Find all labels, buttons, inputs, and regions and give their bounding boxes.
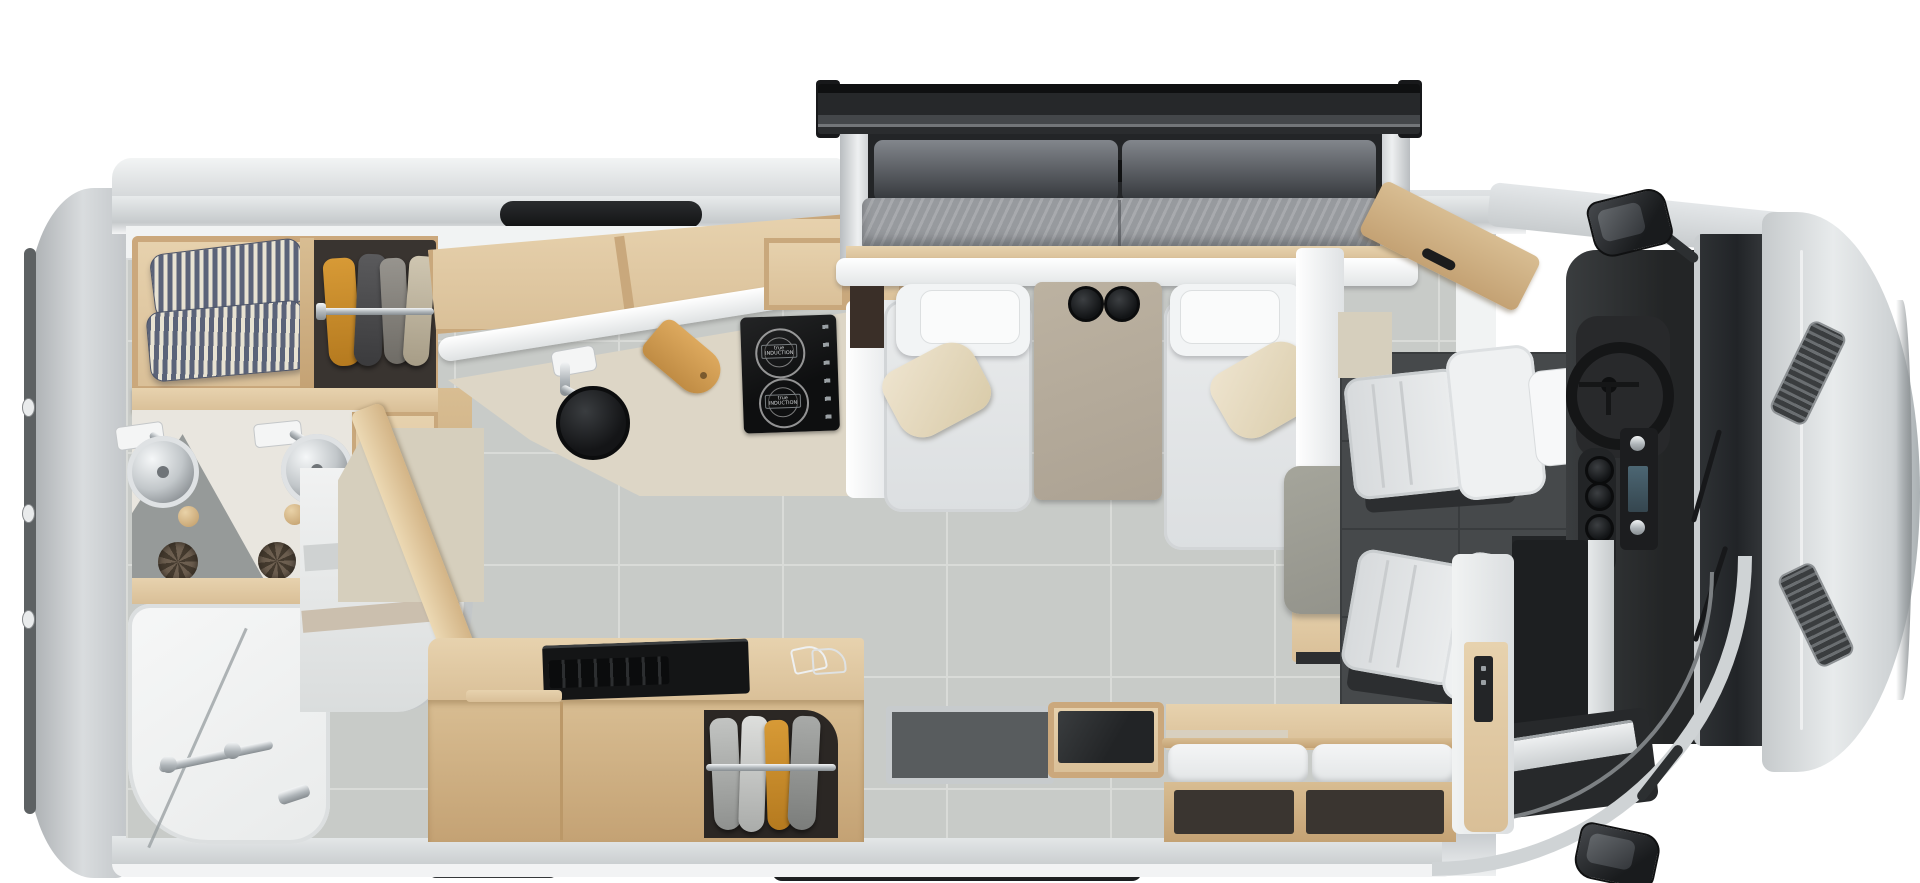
hood-crease: [1800, 250, 1803, 730]
mattress-seam: [1118, 200, 1121, 246]
console-cupholder: [1585, 514, 1614, 543]
bench-cushion: [1312, 744, 1454, 784]
cooktop-brand-label: true INDUCTION: [765, 394, 801, 409]
cubby-opening: [1306, 790, 1444, 834]
bench-cushion: [1168, 744, 1308, 784]
glass-end-table: [1048, 702, 1164, 778]
garment-white: [738, 716, 768, 833]
dash-knob: [1630, 436, 1645, 451]
pinecone-decor: [258, 542, 296, 580]
clearance-light: [22, 398, 35, 417]
glass-inset: [1058, 711, 1154, 763]
cooktop-brand-label: true INDUCTION: [761, 344, 797, 359]
dash-knob: [1630, 520, 1645, 535]
sink-drain-left: [157, 466, 169, 478]
pinecone-decor: [158, 542, 198, 582]
kitchen-sink: [556, 386, 630, 460]
recliner-right-headrest: [1180, 290, 1280, 344]
cabinet-front-seam: [560, 702, 563, 840]
rear-cap: [28, 188, 128, 878]
front-bumper-edge: [1896, 300, 1912, 700]
cooktop-brand-line2: INDUCTION: [765, 350, 794, 357]
recliner-left-headrest: [920, 290, 1020, 344]
table-cupholder: [1104, 286, 1140, 322]
sofa-back-cushion: [1122, 140, 1376, 202]
usb-port-light: [1481, 680, 1486, 685]
mirror-glass: [1596, 201, 1646, 243]
garment-gray: [787, 715, 821, 830]
striped-pillow: [145, 299, 308, 383]
rear-bumper-edge: [24, 248, 36, 814]
divider-base-kick: [1296, 652, 1344, 664]
console-cupholder: [1585, 456, 1614, 485]
shower-handle: [224, 742, 241, 759]
mirror-glass: [1585, 832, 1636, 871]
clearance-light: [22, 504, 35, 523]
console-cupholder: [1585, 482, 1614, 511]
body-skirt: [112, 864, 1450, 877]
roof-vent: [500, 201, 702, 228]
wardrobe-divider: [300, 238, 314, 390]
usb-control-panel: [1474, 656, 1493, 722]
side-mirror-bottom: [1571, 820, 1663, 883]
lounge-corner-gap: [850, 286, 884, 348]
sofa-back-cushion: [874, 140, 1118, 202]
slideout-awning-topper: [818, 84, 1420, 134]
bath-shelf-band: [132, 388, 438, 412]
cooktop-controls: [822, 325, 831, 423]
induction-cooktop: true INDUCTION true INDUCTION: [740, 314, 840, 433]
murphy-bed-mattress: [862, 198, 1380, 248]
shower-handle: [160, 756, 177, 773]
steering-spoke: [1606, 383, 1611, 415]
vanity-knob: [178, 506, 199, 527]
utility-compartment: [886, 706, 1054, 784]
cubby-opening: [1174, 790, 1294, 834]
tv-mount-bar: [466, 690, 562, 702]
infotainment-screen: [1628, 466, 1648, 512]
usb-port-light: [1481, 666, 1486, 671]
rv-floorplan-scene: true INDUCTION true INDUCTION: [0, 0, 1920, 883]
closet-rod: [318, 308, 434, 315]
cutting-board-hole: [700, 372, 707, 379]
lower-closet-rod: [706, 764, 836, 771]
tv-key-row: [549, 656, 670, 688]
bench-cubby-box: [1164, 782, 1456, 842]
cooktop-brand-line2: INDUCTION: [769, 400, 798, 407]
table-cupholder: [1068, 286, 1104, 322]
clearance-light: [22, 610, 35, 629]
roof-edge: [112, 158, 842, 200]
tv-panel: [542, 638, 750, 700]
closet-rod-bracket: [316, 303, 326, 320]
